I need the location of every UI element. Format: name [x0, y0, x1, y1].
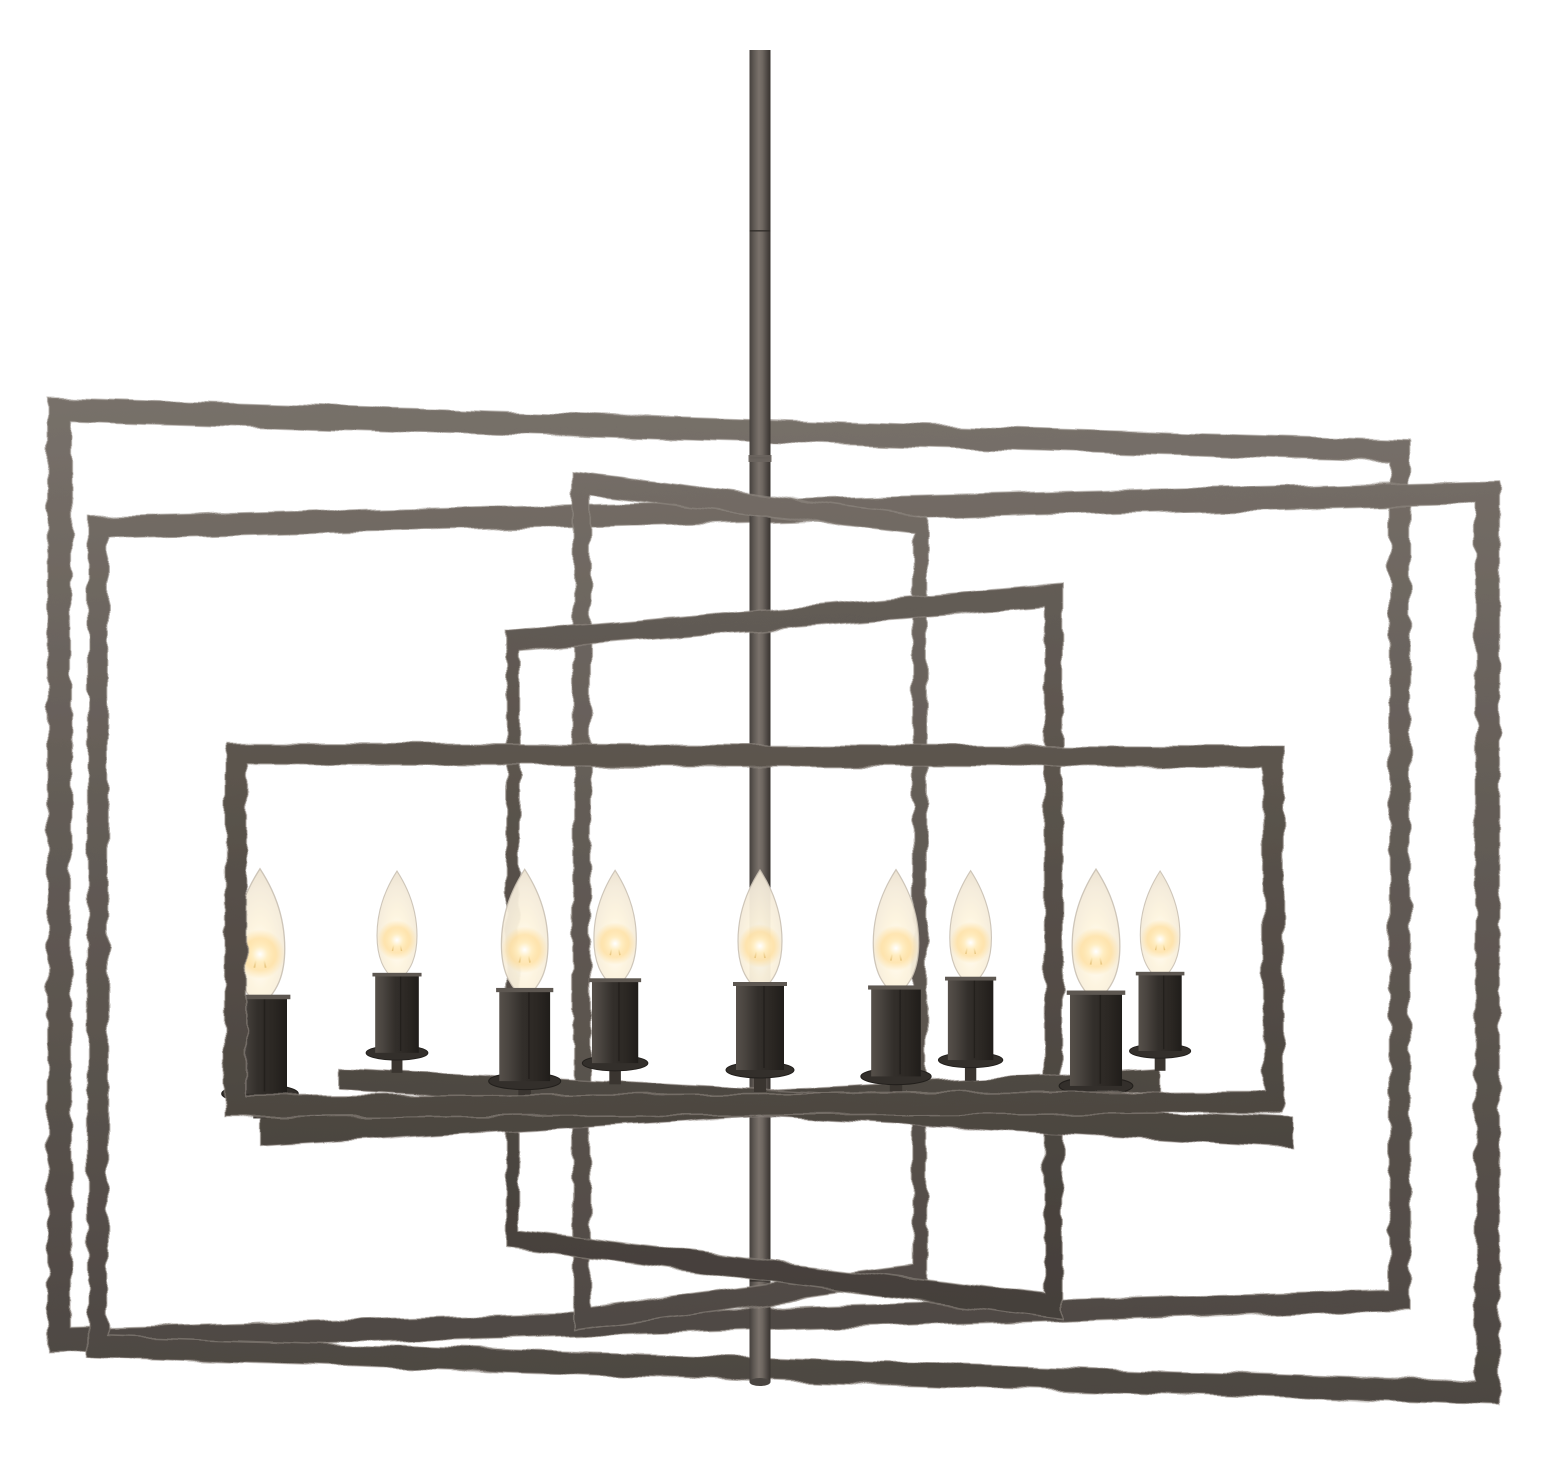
- outer-frame-left-forward-bar: [48, 398, 1410, 1352]
- bulb-glow: [1072, 928, 1120, 976]
- bulb-glow: [501, 927, 548, 974]
- candle-3: [938, 871, 1002, 1081]
- bulb-glow: [873, 925, 918, 970]
- candle-1: [1130, 871, 1191, 1071]
- hang-rod-stem: [750, 50, 771, 1382]
- bulb: [738, 870, 782, 985]
- bulb: [594, 870, 636, 981]
- candle-sleeve-rim: [1136, 972, 1185, 976]
- hang-rod: [749, 50, 772, 1386]
- bulb: [873, 870, 918, 989]
- hang-rod-coupler: [749, 455, 772, 462]
- candle-sleeve-rim: [868, 985, 924, 989]
- bulb-glow: [377, 920, 417, 960]
- bulb: [1140, 871, 1180, 975]
- candle-sleeve-rim: [496, 988, 553, 992]
- candle-sleeve-rim: [1067, 991, 1126, 995]
- candle-sleeve: [1070, 993, 1122, 1086]
- candle-4: [582, 870, 648, 1084]
- candle-2: [366, 871, 428, 1073]
- candle-sleeve-rim: [589, 978, 641, 982]
- hang-rod-seam: [750, 230, 771, 232]
- candle-7: [489, 869, 561, 1104]
- candle-sleeve-rim: [945, 977, 996, 981]
- candle-sleeve: [1139, 974, 1182, 1051]
- candle-sleeve: [948, 979, 993, 1060]
- bulb-glow: [594, 922, 636, 964]
- bulb: [1072, 869, 1120, 994]
- candle-sleeve-rim: [733, 982, 787, 986]
- candle-8: [1059, 869, 1133, 1110]
- chandelier-product-photo: [0, 0, 1560, 1473]
- candle-5: [726, 870, 794, 1092]
- bulb: [950, 871, 992, 980]
- candle-sleeve: [736, 984, 784, 1070]
- bulb-glow: [1140, 920, 1180, 960]
- bulb: [377, 871, 417, 976]
- candle-sleeve-rim: [372, 973, 421, 977]
- outer-frame-left-forward: [48, 398, 1410, 1352]
- candle-sleeve: [499, 990, 550, 1081]
- hang-rod-end-cap: [750, 1378, 771, 1386]
- candle-sleeve: [375, 975, 419, 1053]
- candle-sleeve: [592, 980, 638, 1063]
- candle-sleeve: [871, 987, 921, 1076]
- bulb-glow: [738, 924, 782, 968]
- bulb-glow: [950, 922, 992, 964]
- product-photo-canvas: [0, 0, 1560, 1473]
